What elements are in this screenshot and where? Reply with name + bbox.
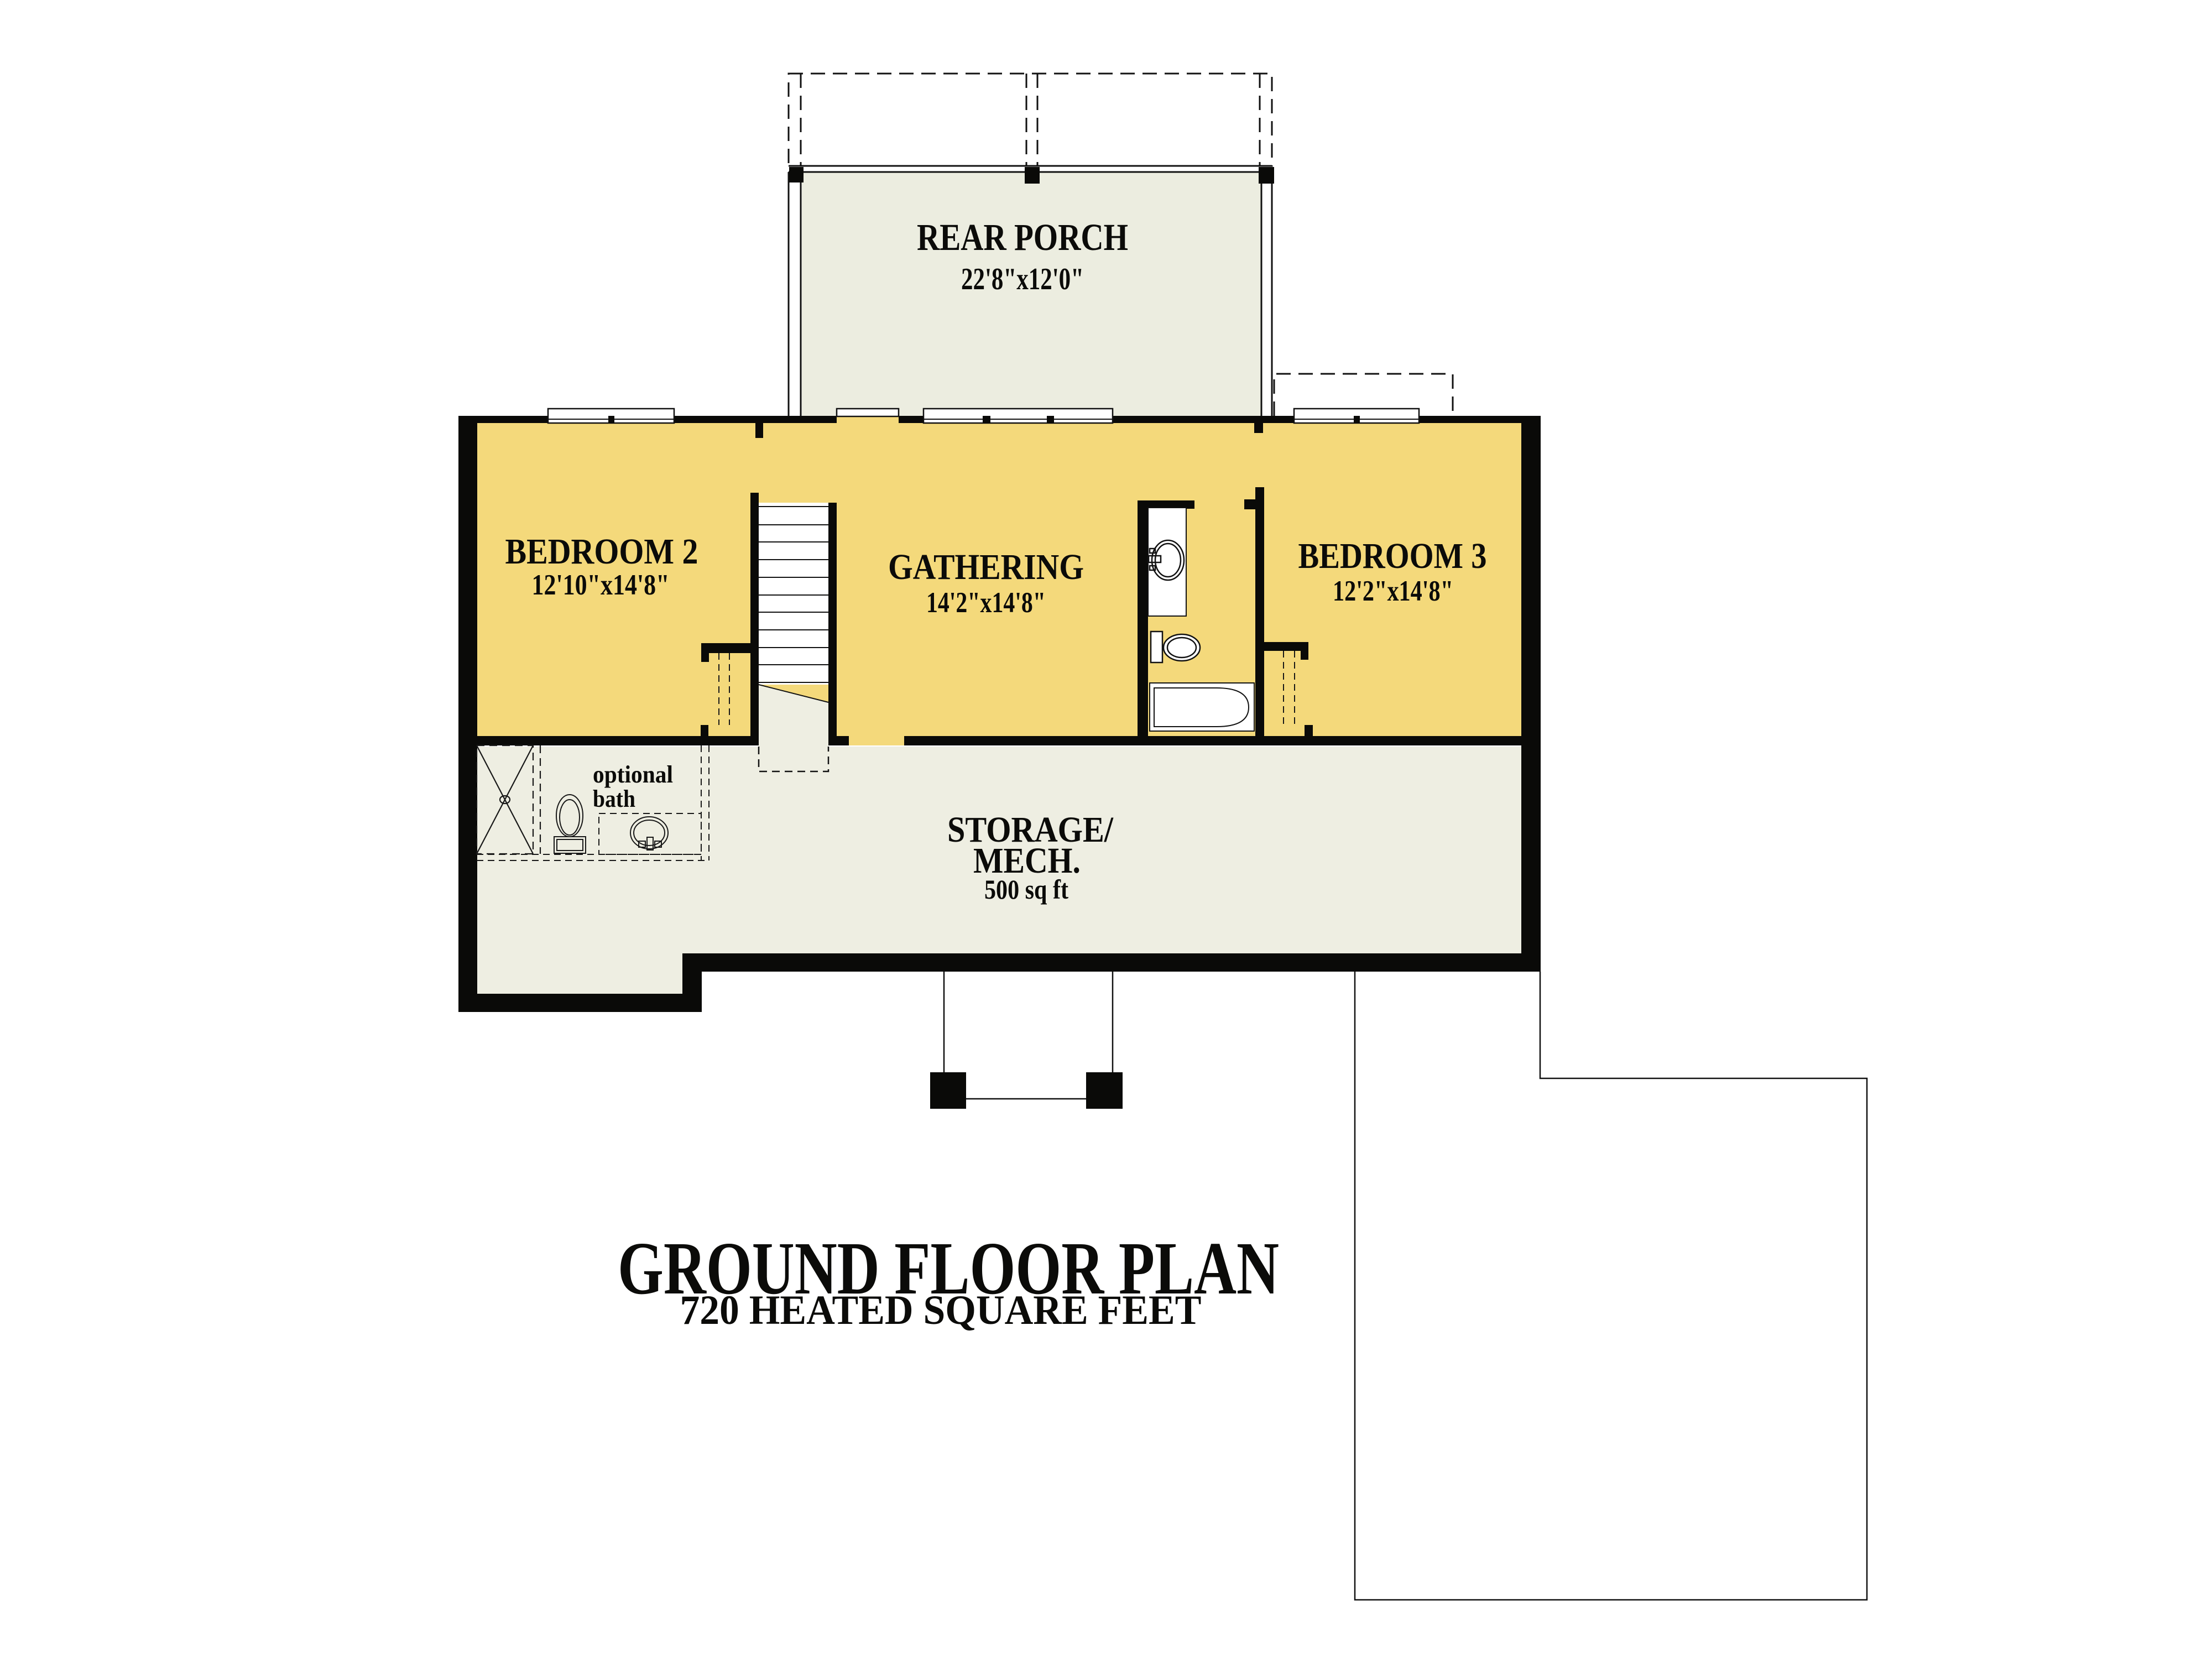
svg-text:12'10"x14'8": 12'10"x14'8" <box>532 569 670 601</box>
svg-text:12'2"x14'8": 12'2"x14'8" <box>1333 575 1453 607</box>
svg-text:REAR PORCH: REAR PORCH <box>917 216 1128 258</box>
svg-text:GATHERING: GATHERING <box>888 547 1084 587</box>
svg-text:720 HEATED SQUARE FEET: 720 HEATED SQUARE FEET <box>680 1287 1202 1333</box>
svg-text:optional: optional <box>593 761 673 788</box>
svg-text:BEDROOM 2: BEDROOM 2 <box>505 531 698 572</box>
svg-text:bath: bath <box>593 785 635 812</box>
svg-text:500 sq ft: 500 sq ft <box>984 874 1068 905</box>
svg-text:22'8"x12'0": 22'8"x12'0" <box>961 262 1084 296</box>
svg-text:BEDROOM 3: BEDROOM 3 <box>1298 536 1487 576</box>
svg-text:14'2"x14'8": 14'2"x14'8" <box>926 587 1046 619</box>
